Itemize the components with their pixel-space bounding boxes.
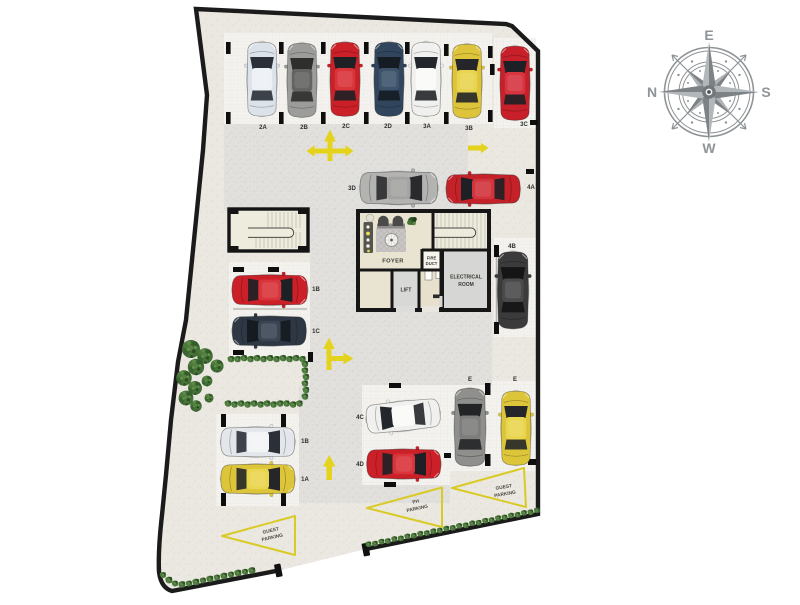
svg-text:3D: 3D: [348, 186, 356, 192]
svg-text:FOYER: FOYER: [382, 259, 404, 265]
svg-text:4C: 4C: [356, 415, 364, 421]
svg-text:2A: 2A: [259, 125, 267, 131]
svg-text:3B: 3B: [465, 126, 473, 132]
svg-text:ELECTRICAL: ELECTRICAL: [450, 275, 482, 281]
svg-text:3C: 3C: [520, 122, 528, 128]
svg-text:1A: 1A: [301, 477, 309, 483]
svg-text:FIRE: FIRE: [427, 256, 437, 261]
svg-text:E: E: [704, 27, 713, 43]
svg-text:LIFT: LIFT: [401, 288, 413, 294]
svg-text:1B: 1B: [312, 287, 320, 293]
svg-text:4B: 4B: [508, 244, 516, 250]
svg-text:2C: 2C: [342, 124, 350, 130]
svg-text:3A: 3A: [423, 124, 431, 130]
svg-text:S: S: [761, 84, 770, 100]
svg-text:4A: 4A: [527, 185, 535, 191]
svg-text:E: E: [468, 377, 472, 383]
svg-text:1C: 1C: [312, 329, 320, 335]
svg-text:4D: 4D: [356, 462, 364, 468]
svg-text:1B: 1B: [301, 439, 309, 445]
svg-text:ROOM: ROOM: [458, 282, 474, 288]
svg-text:E: E: [513, 377, 517, 383]
svg-text:DUCT: DUCT: [426, 261, 438, 266]
svg-text:2B: 2B: [300, 125, 308, 131]
svg-text:2D: 2D: [384, 124, 392, 130]
svg-text:W: W: [702, 140, 716, 156]
svg-text:N: N: [647, 84, 657, 100]
